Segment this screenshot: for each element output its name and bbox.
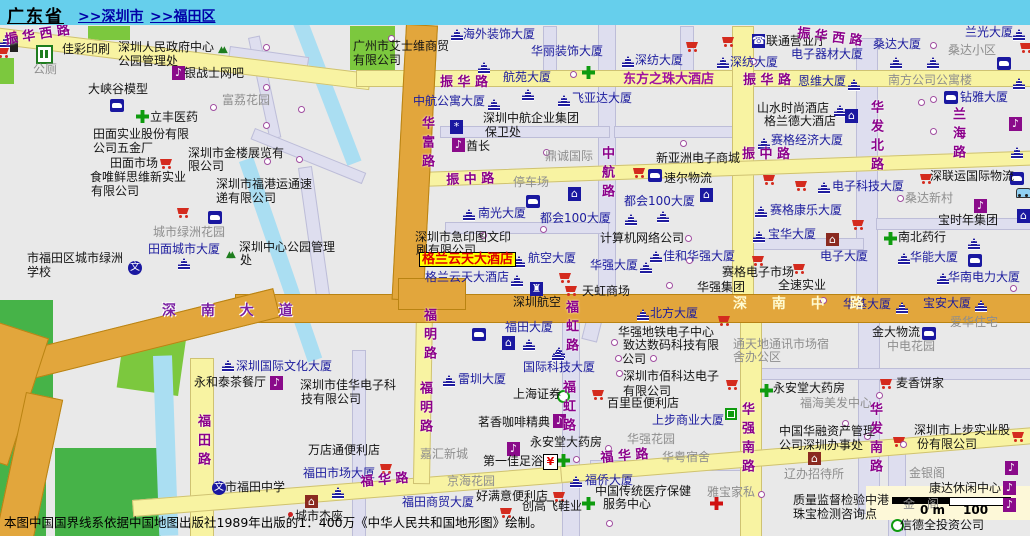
- bld-icon[interactable]: [222, 360, 234, 372]
- map-label: 北方大厦: [650, 307, 698, 320]
- park-icon[interactable]: [526, 195, 540, 208]
- home-icon[interactable]: ⌂: [1017, 209, 1030, 223]
- map-label: 上海证券: [513, 388, 561, 401]
- map-label: 深圳市福港运通速: [216, 178, 312, 191]
- dot-icon[interactable]: [876, 392, 883, 399]
- map-label: 宝安大厦: [923, 297, 971, 310]
- map-label: 福虹路: [564, 300, 577, 357]
- dot-icon[interactable]: [650, 355, 657, 362]
- map-label: 宝时年集团: [938, 214, 998, 227]
- map-label: 深圳人民政府中心: [118, 41, 214, 54]
- breadcrumb: 广东省 >>深圳市 >>福田区: [0, 0, 1030, 25]
- highlighted-poi-label[interactable]: 格兰云天大酒店: [419, 252, 516, 267]
- cart-icon[interactable]: [559, 272, 573, 284]
- map-label: 桑达大厦: [873, 38, 921, 51]
- map-label: 信德全投资公司: [900, 519, 984, 532]
- home-icon[interactable]: ⌂: [700, 188, 713, 202]
- map-label: 康达休闲中心: [929, 482, 1001, 495]
- map-label: 深圳市佳华电子科: [300, 379, 396, 392]
- cart-icon[interactable]: [160, 158, 174, 170]
- dot-icon[interactable]: [210, 104, 217, 111]
- map-label: 永安堂大药房: [530, 436, 602, 449]
- map-label: 永和泰茶餐厅: [194, 376, 266, 389]
- cart-icon[interactable]: [880, 378, 894, 390]
- map-label: 市福田区城市绿洲: [27, 252, 123, 265]
- map-label: 计算机网络公司: [600, 232, 684, 245]
- map-label: 立丰医药: [150, 111, 198, 124]
- music-icon[interactable]: ♪: [452, 138, 465, 152]
- map-label: 创高飞鞋业: [522, 500, 582, 513]
- map-label: 有限公司: [91, 185, 139, 198]
- dot-icon[interactable]: [570, 71, 577, 78]
- map-label: 田面市场: [110, 157, 158, 170]
- map-label: 恩维大厦: [798, 75, 846, 88]
- map-label: 珠宝检测咨询点: [793, 508, 877, 521]
- map-label: 本图中国国界线系依据中国地图出版社1989年出版的1：400万《中华人民共和国地…: [4, 516, 543, 529]
- map-shape-park2: [0, 58, 14, 84]
- dot-icon[interactable]: [930, 96, 937, 103]
- map-label: 致达数码科技有限: [623, 339, 719, 352]
- cart-icon[interactable]: [793, 263, 807, 275]
- map-canvas[interactable]: 广东省 >>深圳市 >>福田区 振 华 西 路振 华 西 路振 华 路振 华 路…: [0, 0, 1030, 536]
- map-label: 深 南 中 路: [733, 298, 874, 311]
- school-icon[interactable]: 文: [212, 481, 226, 495]
- map-label: 华强花园: [627, 433, 675, 446]
- map-label: 田面实业股份有限: [93, 128, 189, 141]
- map-label: 都会100大厦: [624, 195, 695, 208]
- dot-icon[interactable]: [573, 456, 580, 463]
- map-label: 华强集团: [697, 281, 745, 294]
- map-label: 嘉汇新城: [420, 448, 468, 461]
- map-label: 海外装饰大厦: [463, 28, 535, 41]
- map-label: 佳彩印刷: [62, 43, 110, 56]
- map-label: 格兰云天大酒店: [425, 271, 509, 284]
- cart-icon[interactable]: [592, 389, 606, 401]
- map-label: 南光大厦: [478, 207, 526, 220]
- map-label: 雅宝家私: [707, 486, 755, 499]
- map-label: 宝华大厦: [768, 228, 816, 241]
- map-shape-park2: [88, 26, 130, 40]
- map-label: 福侨大厦: [585, 474, 633, 487]
- cart-icon[interactable]: [795, 180, 809, 192]
- brown-icon[interactable]: ⌂: [305, 495, 318, 508]
- map-label: 桑达小区: [948, 44, 996, 57]
- map-label: 佳和华强大厦: [663, 250, 735, 263]
- dot-icon[interactable]: [615, 355, 622, 362]
- crossg-icon[interactable]: [582, 497, 595, 510]
- map-label: 兰海路: [951, 107, 964, 164]
- map-shape-lav: [440, 126, 610, 138]
- map-label: 公司深圳办事处: [779, 439, 863, 452]
- dot-icon[interactable]: [606, 520, 613, 527]
- cart-icon[interactable]: [686, 41, 700, 53]
- map-label: 新亚洲电子商城: [656, 152, 740, 165]
- map-label: 电子科技大厦: [832, 180, 904, 193]
- map-label: 处: [240, 254, 252, 267]
- map-label: 食唯鲜思维新实业: [90, 171, 186, 184]
- dot-icon[interactable]: [296, 156, 303, 163]
- cart-icon[interactable]: [1020, 42, 1030, 54]
- map-label: 酋长: [466, 140, 490, 153]
- bld-icon[interactable]: [1013, 29, 1025, 41]
- map-label: 深纺大厦: [635, 54, 683, 67]
- music-icon[interactable]: ♪: [1003, 481, 1016, 495]
- map-label: 停车场: [513, 176, 549, 189]
- map-label: 限公司: [188, 160, 224, 173]
- map-label: 深联运国际物流: [930, 170, 1014, 183]
- map-label: 100: [963, 504, 988, 517]
- bld-icon[interactable]: [178, 258, 190, 270]
- map-label: 上步商业大厦: [652, 414, 724, 427]
- park-icon[interactable]: [472, 328, 486, 341]
- map-label: 华发南路: [868, 402, 881, 478]
- map-label: 南方公司公寓楼: [888, 74, 972, 87]
- cart-icon[interactable]: [177, 207, 191, 219]
- dot-icon[interactable]: [611, 339, 618, 346]
- bld-icon[interactable]: [657, 211, 669, 223]
- dot-icon[interactable]: [666, 282, 673, 289]
- bld-icon[interactable]: [488, 99, 500, 111]
- map-label: 福 华 路: [360, 472, 409, 489]
- map-label: 富荔花园: [222, 94, 270, 107]
- park-icon[interactable]: [944, 91, 958, 104]
- map-label: 舍办公区: [733, 351, 781, 364]
- cart-icon[interactable]: [852, 219, 866, 231]
- map-label: 服务中心: [603, 498, 651, 511]
- bld-icon[interactable]: [818, 182, 830, 194]
- map-label: 东方之珠大酒店: [623, 73, 714, 86]
- bld-icon[interactable]: [443, 375, 455, 387]
- map-label: 中电花园: [887, 340, 935, 353]
- map-label: 桑达新村: [905, 192, 953, 205]
- gear-icon[interactable]: *: [450, 120, 463, 134]
- map-label: 银战士网吧: [184, 67, 244, 80]
- park-icon[interactable]: [997, 57, 1011, 70]
- dot-icon[interactable]: [540, 226, 547, 233]
- bld-icon[interactable]: [890, 57, 902, 69]
- map-label: 爱华住宅: [950, 316, 998, 329]
- crossg-icon[interactable]: [136, 110, 149, 123]
- map-label: 递有限公司: [216, 192, 276, 205]
- dot-icon[interactable]: [263, 122, 270, 129]
- map-label: 福田商贸大厦: [402, 496, 474, 509]
- park-icon[interactable]: [110, 99, 124, 112]
- map-label: 华丽装饰大厦: [531, 45, 603, 58]
- park-icon[interactable]: [968, 254, 982, 267]
- cart-icon[interactable]: [565, 285, 579, 297]
- bld-icon[interactable]: [511, 275, 523, 287]
- breadcrumb-link-city[interactable]: >>深圳市: [78, 6, 143, 26]
- breadcrumb-link-district[interactable]: >>福田区: [150, 6, 215, 26]
- bank-icon[interactable]: ♜: [530, 282, 543, 296]
- map-label: 华发北路: [869, 100, 882, 176]
- map-label: 格兰德大酒店: [764, 115, 836, 128]
- music-icon[interactable]: ♪: [974, 199, 987, 213]
- bld-icon[interactable]: [650, 251, 662, 263]
- map-label: 深圳航空: [513, 296, 561, 309]
- map-label: 钻雅大厦: [960, 91, 1008, 104]
- bld-icon[interactable]: [523, 339, 535, 351]
- music-icon[interactable]: ♪: [1009, 117, 1022, 131]
- dot-icon[interactable]: [680, 140, 687, 147]
- cart-icon[interactable]: [718, 315, 732, 327]
- brown-icon[interactable]: ⌂: [826, 233, 839, 246]
- bld-icon[interactable]: [640, 262, 652, 274]
- dot-icon[interactable]: [298, 106, 305, 113]
- map-label: 华能大厦: [910, 251, 958, 264]
- map-label: 公园管理处: [118, 55, 178, 68]
- bld-icon[interactable]: [717, 57, 729, 69]
- dot-icon[interactable]: [263, 84, 270, 91]
- bld-icon[interactable]: [478, 62, 490, 74]
- map-label: 赛格康乐大厦: [770, 204, 842, 217]
- map-label: 中航路: [600, 146, 613, 203]
- dot-icon[interactable]: [758, 491, 765, 498]
- dot-icon[interactable]: [897, 195, 904, 202]
- bld-icon[interactable]: [968, 238, 980, 250]
- gsq-icon[interactable]: [725, 408, 737, 420]
- music-icon[interactable]: ♪: [270, 376, 283, 390]
- dot-icon[interactable]: [930, 42, 937, 49]
- map-label: 华南电力大厦: [948, 271, 1020, 284]
- map-label: 深圳国际文化大厦: [236, 360, 332, 373]
- dot-icon[interactable]: [900, 441, 907, 448]
- map-label: 天虹商场: [582, 285, 630, 298]
- map-label: 电子大厦: [820, 250, 868, 263]
- map-label: 金银阁: [909, 467, 945, 480]
- map-shape-orange: [235, 294, 1030, 323]
- map-label: 福虹路: [561, 380, 574, 437]
- map-label: 福 华 路: [600, 448, 649, 465]
- map-label: 华强南路: [740, 402, 753, 478]
- cart-icon[interactable]: [726, 379, 740, 391]
- map-label: 公司五金厂: [93, 142, 153, 155]
- bld-icon[interactable]: [522, 89, 534, 101]
- park-icon[interactable]: [208, 211, 222, 224]
- map-label: 福田路: [196, 414, 209, 471]
- park-icon[interactable]: [648, 169, 662, 182]
- music-icon[interactable]: ♪: [1005, 461, 1018, 475]
- map-label: 都会100大厦: [540, 212, 611, 225]
- map-label: 雷圳大厦: [458, 373, 506, 386]
- map-label: 鼎诚国际: [545, 150, 593, 163]
- dot-icon[interactable]: [685, 235, 692, 242]
- cart-icon[interactable]: [763, 174, 777, 186]
- map-label: 广州市艾士维商贸: [353, 40, 449, 53]
- map-label: 辽办招待所: [784, 468, 844, 481]
- map-label: 振 华 路: [743, 74, 791, 87]
- map-label: 华粤宿舍: [662, 451, 710, 464]
- map-label: 深圳市上步实业股: [914, 424, 1010, 437]
- map-label: 深圳中心公园管理: [239, 241, 335, 254]
- map-label: 福明路: [422, 308, 435, 365]
- map-label: 深 南 大 道: [162, 305, 303, 318]
- bld-icon[interactable]: [451, 29, 463, 41]
- school-icon[interactable]: 文: [128, 261, 142, 275]
- map-label: 福明路: [418, 381, 431, 438]
- dot-icon[interactable]: [263, 44, 270, 51]
- map-label: 华强大厦: [590, 259, 638, 272]
- map-label: 福海美发中心: [800, 397, 872, 410]
- map-label: 南北药行: [898, 231, 946, 244]
- home-icon[interactable]: ⌂: [845, 109, 858, 123]
- bld-icon[interactable]: [622, 56, 634, 68]
- map-label: 深纺大厦: [730, 56, 778, 69]
- bld-icon[interactable]: [463, 209, 475, 221]
- bld-icon[interactable]: [755, 206, 767, 218]
- bld-icon[interactable]: [753, 231, 765, 243]
- crossg-icon[interactable]: [884, 232, 897, 245]
- map-label: 田面城市大厦: [148, 243, 220, 256]
- dot-icon[interactable]: [616, 370, 623, 377]
- map-label: 振 中 路: [742, 148, 790, 161]
- map-label: 兰光大厦: [965, 26, 1013, 39]
- map-label: 大峡谷模型: [88, 83, 148, 96]
- cart-icon[interactable]: [722, 36, 736, 48]
- dot-icon[interactable]: [918, 99, 925, 106]
- home-icon[interactable]: ⌂: [568, 187, 581, 201]
- map-label: 振 中 路: [446, 172, 494, 187]
- map-label: 深圳中航企业集团: [483, 112, 579, 125]
- map-label: 电子器材大厦: [791, 48, 863, 61]
- map-label: 有限公司: [353, 54, 401, 67]
- cart-icon[interactable]: [0, 47, 11, 59]
- dot-icon[interactable]: [930, 128, 937, 135]
- phone-icon[interactable]: ☎: [752, 34, 765, 48]
- bld-icon[interactable]: [558, 95, 570, 107]
- map-label: 百里臣便利店: [607, 397, 679, 410]
- map-label: 福田大厦: [505, 321, 553, 334]
- bld-icon[interactable]: [898, 253, 910, 265]
- map-label: 0 m: [920, 504, 945, 517]
- map-label: 速尔物流: [664, 172, 712, 185]
- tree-icon[interactable]: ▲▲: [218, 45, 224, 55]
- bld-icon[interactable]: [927, 57, 939, 69]
- map-label: 茗香咖啡精典: [478, 416, 550, 429]
- map-label: 份有限公司: [917, 438, 977, 451]
- map-label: 麦香饼家: [896, 377, 944, 390]
- map-label: 质量监督检验中港: [793, 494, 889, 507]
- map-label: 飞亚达大厦: [572, 92, 632, 105]
- map-label: 华富路: [420, 116, 433, 173]
- yen-icon[interactable]: ¥: [543, 454, 558, 470]
- music-icon[interactable]: ♪: [1003, 498, 1016, 512]
- breadcrumb-region[interactable]: 广东省: [7, 2, 64, 27]
- home-icon[interactable]: ⌂: [502, 336, 515, 350]
- map-label: 振 华 路: [440, 76, 488, 89]
- map-label: 市福田中学: [225, 481, 285, 494]
- cart-icon[interactable]: [1012, 431, 1026, 443]
- map-label: 技有限公司: [301, 393, 361, 406]
- map-label: 国际科技大厦: [523, 361, 595, 374]
- map-label: 金大物流: [872, 326, 920, 339]
- brown-icon[interactable]: ⌂: [808, 452, 821, 465]
- map-label: 公厕: [33, 63, 57, 76]
- map-label: 城市绿洲花园: [153, 226, 225, 239]
- map-shape-lav: [614, 126, 738, 138]
- map-label: 公司: [622, 353, 646, 366]
- map-label: 中国华融资产管理: [779, 425, 875, 438]
- map-label: 第一佳足浴: [483, 455, 543, 468]
- bld-icon[interactable]: [625, 214, 637, 226]
- map-label: 学校: [27, 266, 51, 279]
- map-label: 航空大厦: [528, 252, 576, 265]
- map-label: 航苑大厦: [503, 71, 551, 84]
- map-label: 京海花园: [447, 475, 495, 488]
- cart-icon[interactable]: [633, 167, 647, 179]
- dot-icon[interactable]: [1010, 285, 1017, 292]
- map-label: 深圳市佰科达电子: [623, 370, 719, 383]
- map-label: 中航公寓大厦: [413, 95, 485, 108]
- tree-icon[interactable]: ▲▲: [226, 250, 232, 260]
- map-label: 全速实业: [778, 279, 826, 292]
- carp-icon[interactable]: [1016, 188, 1030, 198]
- map-label: 保卫处: [485, 126, 521, 139]
- map-label: 赛格经济大厦: [771, 134, 843, 147]
- map-label: 万店通便利店: [308, 444, 380, 457]
- map-label: 永安堂大药房: [773, 382, 845, 395]
